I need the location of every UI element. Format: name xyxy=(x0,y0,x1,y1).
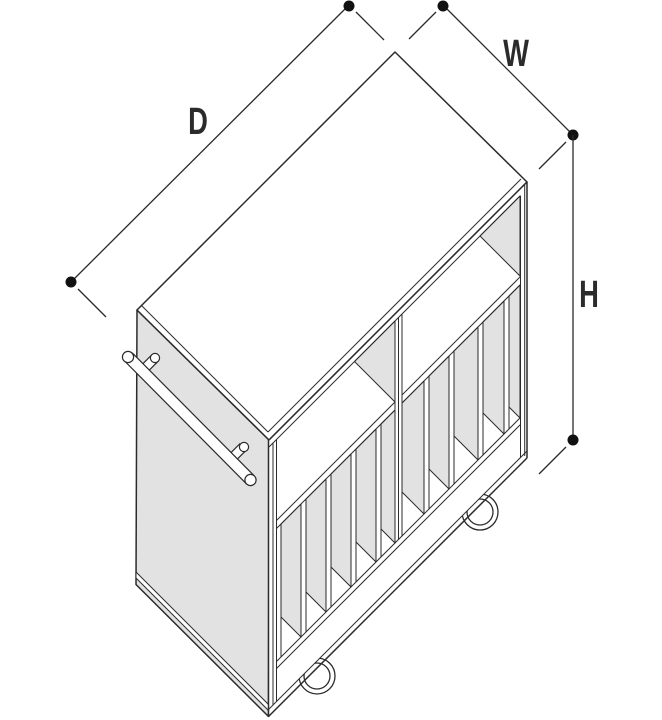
width-extension-tick-top xyxy=(409,12,436,39)
depth-label: D xyxy=(188,101,208,143)
height-label: H xyxy=(579,274,599,316)
depth-endpoint-dot-top xyxy=(344,1,355,12)
height-extension-tick-bottom xyxy=(539,447,566,474)
isometric-cart-diagram: D W H xyxy=(0,0,662,720)
diagram-canvas: D W H xyxy=(0,0,662,720)
width-label: W xyxy=(503,33,529,75)
depth-extension-tick-top xyxy=(356,12,384,40)
dimension-height xyxy=(539,135,579,474)
depth-endpoint-dot-bottom xyxy=(66,277,77,288)
width-extension-tick-bottom xyxy=(539,142,566,169)
height-endpoint-dot-bottom xyxy=(568,435,579,446)
depth-extension-tick-bottom xyxy=(78,289,106,317)
width-endpoint-dot-top xyxy=(438,1,449,12)
